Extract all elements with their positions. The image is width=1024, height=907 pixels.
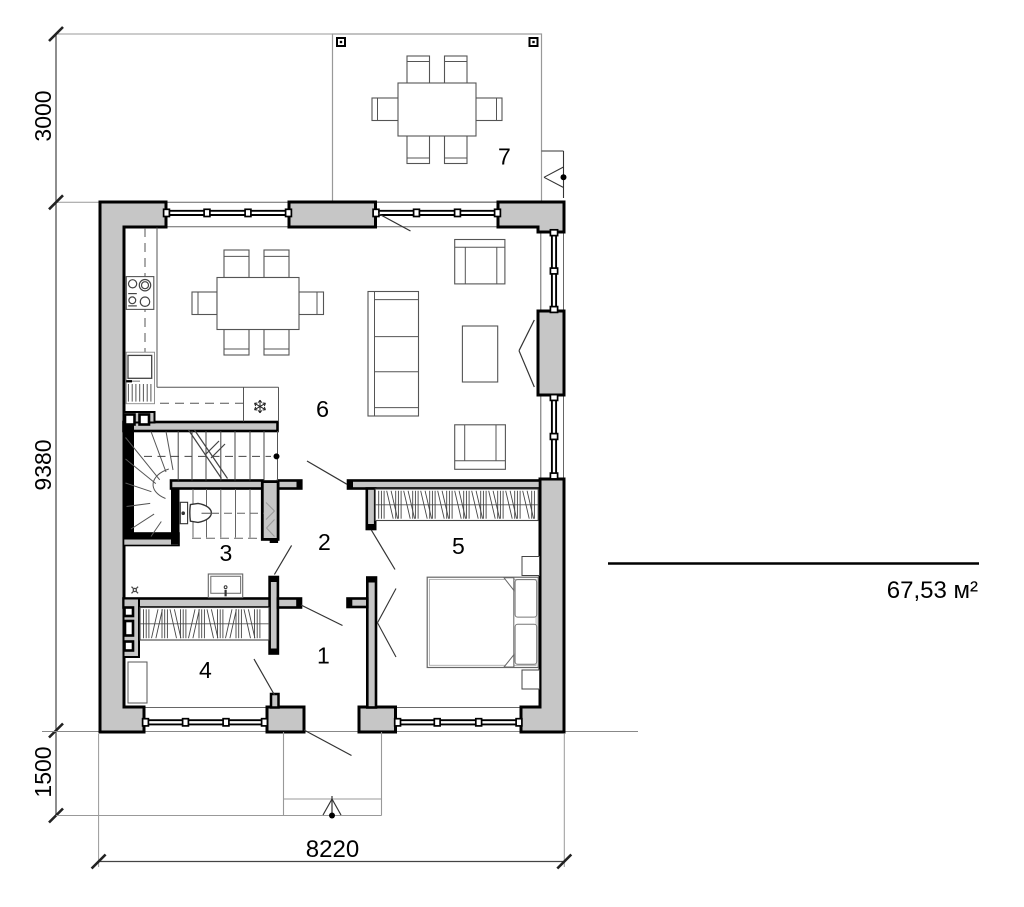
svg-text:6: 6 [316, 396, 329, 422]
svg-text:1: 1 [317, 643, 330, 669]
svg-text:4: 4 [199, 657, 212, 683]
svg-text:67,53 м²: 67,53 м² [887, 577, 978, 604]
svg-text:3: 3 [220, 540, 233, 566]
svg-text:8220: 8220 [306, 836, 359, 863]
svg-text:5: 5 [452, 533, 465, 559]
svg-text:7: 7 [498, 144, 511, 170]
svg-text:2: 2 [318, 529, 331, 555]
svg-text:3000: 3000 [30, 90, 56, 141]
svg-text:9380: 9380 [30, 439, 56, 490]
svg-text:1500: 1500 [30, 746, 56, 797]
